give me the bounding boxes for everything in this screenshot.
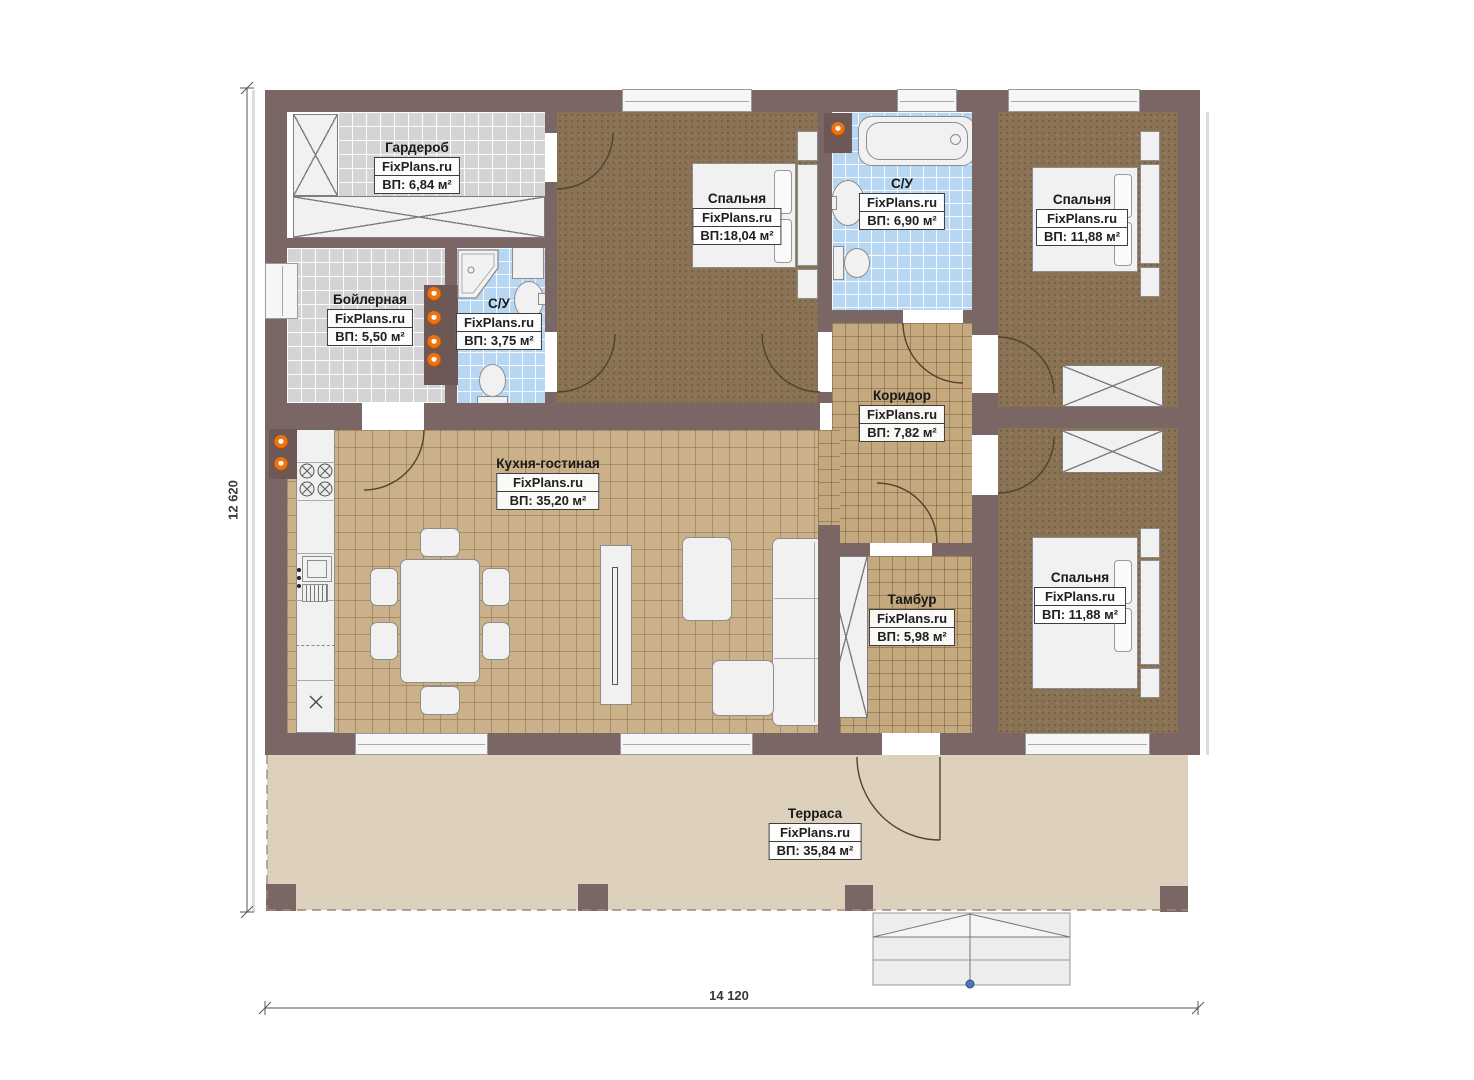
brand-label: FixPlans.ru	[692, 208, 781, 227]
room-area: ВП: 35,20 м²	[496, 491, 599, 510]
terrace-boundary	[267, 755, 1188, 910]
room-name: Спальня	[692, 191, 781, 206]
dimension-height: 12 620	[226, 480, 241, 520]
door-arc	[877, 483, 937, 543]
room-label-bathroom-main: С/У FixPlans.ru ВП: 6,90 м²	[859, 176, 945, 230]
room-name: С/У	[859, 176, 945, 191]
room-area: ВП: 7,82 м²	[859, 423, 945, 442]
room-label-bedroom-bottom-right: Спальня FixPlans.ru ВП: 11,88 м²	[1034, 570, 1126, 624]
room-name: Спальня	[1034, 570, 1126, 585]
brand-label: FixPlans.ru	[327, 309, 413, 328]
stairs	[873, 913, 1070, 988]
floor-plan: Гардероб FixPlans.ru ВП: 6,84 м² Бойлерн…	[0, 0, 1474, 1080]
room-name: Бойлерная	[327, 292, 413, 307]
room-label-vestibule: Тамбур FixPlans.ru ВП: 5,98 м²	[869, 592, 955, 646]
shower-cabin	[458, 250, 498, 298]
room-area: ВП: 11,88 м²	[1034, 605, 1126, 624]
room-name: Терраса	[769, 806, 862, 821]
door-arc	[557, 334, 615, 392]
door-arc	[557, 133, 613, 189]
room-name: Коридор	[859, 388, 945, 403]
room-area: ВП: 6,90 м²	[859, 211, 945, 230]
room-area: ВП: 3,75 м²	[456, 331, 542, 350]
stove-burners	[300, 464, 332, 496]
door-arc	[857, 757, 940, 840]
room-label-boiler: Бойлерная FixPlans.ru ВП: 5,50 м²	[327, 292, 413, 346]
room-name: С/У	[456, 296, 542, 311]
room-label-kitchen-living: Кухня-гостиная FixPlans.ru ВП: 35,20 м²	[496, 456, 599, 510]
room-name: Гардероб	[374, 140, 460, 155]
brand-label: FixPlans.ru	[859, 405, 945, 424]
room-label-bathroom-small: С/У FixPlans.ru ВП: 3,75 м²	[456, 296, 542, 350]
door-arc	[762, 334, 820, 392]
stairs-marker-icon	[966, 980, 974, 988]
counter-x-mark	[310, 696, 322, 708]
room-label-corridor: Коридор FixPlans.ru ВП: 7,82 м²	[859, 388, 945, 442]
dimension-width: 14 120	[709, 988, 749, 1003]
brand-label: FixPlans.ru	[374, 157, 460, 176]
brand-label: FixPlans.ru	[1034, 587, 1126, 606]
brand-label: FixPlans.ru	[769, 823, 862, 842]
room-label-wardrobe: Гардероб FixPlans.ru ВП: 6,84 м²	[374, 140, 460, 194]
room-label-terrace: Терраса FixPlans.ru ВП: 35,84 м²	[769, 806, 862, 860]
brand-label: FixPlans.ru	[496, 473, 599, 492]
room-area: ВП: 6,84 м²	[374, 175, 460, 194]
door-arc	[998, 337, 1054, 393]
brand-label: FixPlans.ru	[1036, 209, 1128, 228]
room-label-bedroom-master: Спальня FixPlans.ru ВП:18,04 м²	[692, 191, 781, 245]
room-area: ВП: 35,84 м²	[769, 841, 862, 860]
brand-label: FixPlans.ru	[869, 609, 955, 628]
door-arc	[903, 323, 963, 383]
door-arc	[998, 437, 1054, 493]
room-name: Спальня	[1036, 192, 1128, 207]
room-area: ВП:18,04 м²	[692, 226, 781, 245]
room-label-bedroom-top-right: Спальня FixPlans.ru ВП: 11,88 м²	[1036, 192, 1128, 246]
room-name: Тамбур	[869, 592, 955, 607]
room-area: ВП: 5,98 м²	[869, 627, 955, 646]
door-arc	[364, 430, 424, 490]
brand-label: FixPlans.ru	[859, 193, 945, 212]
room-area: ВП: 11,88 м²	[1036, 227, 1128, 246]
room-area: ВП: 5,50 м²	[327, 327, 413, 346]
brand-label: FixPlans.ru	[456, 313, 542, 332]
room-name: Кухня-гостиная	[496, 456, 599, 471]
plan-vector-overlay	[0, 0, 1474, 1080]
